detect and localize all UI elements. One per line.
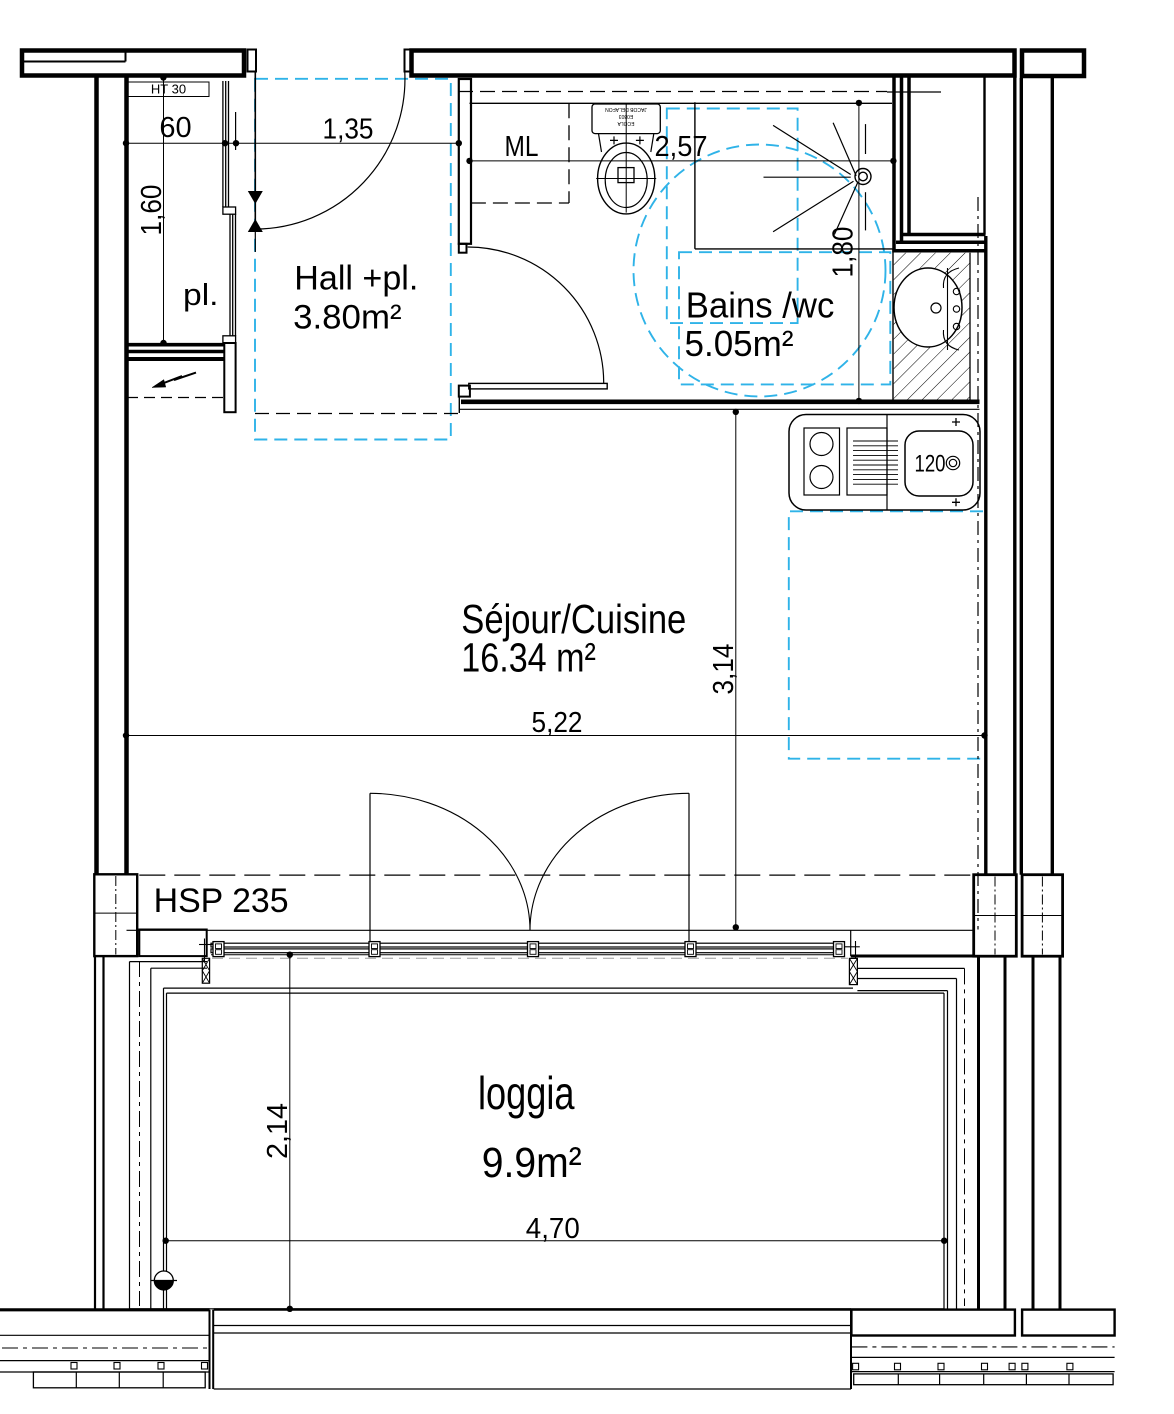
svg-text:loggia: loggia <box>478 1067 575 1119</box>
svg-text:1,35: 1,35 <box>323 114 374 146</box>
svg-text:3.80m²: 3.80m² <box>293 299 402 337</box>
svg-text:5,22: 5,22 <box>532 707 583 739</box>
svg-text:2,57: 2,57 <box>655 131 708 163</box>
svg-text:JACOB DELAFON: JACOB DELAFON <box>605 106 647 112</box>
svg-text:4,70: 4,70 <box>526 1213 580 1245</box>
svg-text:16.34 m²: 16.34 m² <box>461 635 596 681</box>
svg-text:E0803: E0803 <box>619 113 634 119</box>
svg-text:HT 30: HT 30 <box>151 82 186 97</box>
svg-text:3,14: 3,14 <box>708 644 740 695</box>
svg-text:pl.: pl. <box>183 277 219 312</box>
svg-text:1,60: 1,60 <box>136 185 168 236</box>
svg-text:120: 120 <box>915 451 946 478</box>
svg-text:1,80: 1,80 <box>828 227 860 278</box>
svg-text:9.9m²: 9.9m² <box>482 1139 582 1187</box>
svg-text:Hall +pl.: Hall +pl. <box>294 259 418 297</box>
svg-text:ECOLA: ECOLA <box>617 120 635 126</box>
svg-text:5.05m²: 5.05m² <box>685 323 794 364</box>
svg-text:HSP 235: HSP 235 <box>154 882 289 920</box>
svg-text:Bains /wc: Bains /wc <box>686 285 835 326</box>
svg-text:ML: ML <box>505 131 539 163</box>
svg-text:60: 60 <box>159 112 191 144</box>
svg-text:2,14: 2,14 <box>262 1103 294 1159</box>
